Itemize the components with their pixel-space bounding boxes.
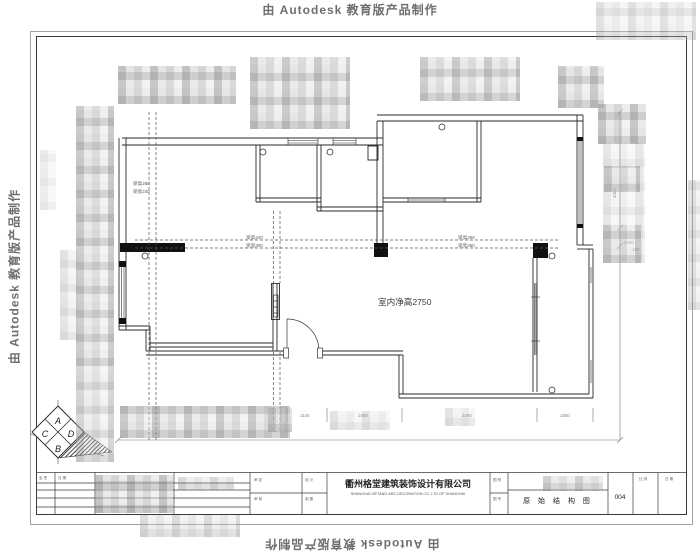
logo-letter-a: A — [54, 416, 61, 426]
svg-text:1140: 1140 — [300, 413, 310, 418]
drawing-title: 原 始 结 构 图 — [523, 496, 593, 505]
svg-text:图 号: 图 号 — [493, 496, 502, 501]
svg-text:梁宽240: 梁宽240 — [133, 188, 150, 195]
svg-text:设 计: 设 计 — [305, 477, 314, 482]
svg-text:比 例: 比 例 — [639, 476, 648, 481]
column-circle-markers — [142, 124, 555, 393]
svg-text:梁宽300: 梁宽300 — [246, 242, 263, 249]
column-fills — [119, 137, 583, 324]
floorplan-canvas: 1140 1500 3280 1500 4300 2300 150 室内净高27… — [0, 0, 700, 560]
door-symbol — [274, 295, 323, 358]
ceiling-height-label: 室内净高2750 — [378, 296, 432, 307]
autodesk-watermark-top: 由 Autodesk 教育版产品制作 — [200, 1, 500, 18]
company-name-cn: 衢州格堂建筑装饰设计有限公司 — [345, 478, 471, 489]
svg-text:会 签: 会 签 — [39, 475, 48, 480]
company-logo: A D B C — [30, 400, 112, 464]
svg-text:梁高240: 梁高240 — [246, 234, 263, 241]
svg-text:制 图: 制 图 — [305, 496, 314, 501]
window-symbols — [122, 138, 592, 383]
logo-letter-c: C — [42, 429, 49, 439]
autodesk-watermark-bottom: 由 Autodesk 教育版产品制作 — [226, 536, 478, 553]
drawing-number: 004 — [615, 494, 626, 501]
beam-dashed-lines — [135, 112, 560, 440]
outer-walls — [119, 115, 593, 398]
svg-text:1500: 1500 — [358, 413, 368, 418]
svg-text:150: 150 — [632, 247, 640, 252]
svg-text:图 别: 图 别 — [493, 477, 502, 482]
logo-letter-b: B — [55, 444, 61, 454]
svg-text:审 核: 审 核 — [254, 496, 263, 501]
svg-text:审 定: 审 定 — [254, 477, 263, 482]
svg-text:4300: 4300 — [612, 188, 617, 198]
svg-text:2300: 2300 — [624, 240, 634, 245]
svg-text:梁宽250: 梁宽250 — [458, 242, 475, 249]
autodesk-watermark-left: 由 Autodesk 教育版产品制作 — [6, 151, 23, 403]
drawing-page: 由 Autodesk 教育版产品制作 由 Autodesk 教育版产品制作 由 … — [0, 0, 700, 560]
svg-text:1500: 1500 — [560, 413, 570, 418]
logo-letter-d: D — [68, 429, 75, 439]
svg-text:日 期: 日 期 — [665, 476, 674, 481]
svg-text:梁高250: 梁高250 — [458, 234, 475, 241]
svg-text:日 期: 日 期 — [58, 475, 67, 480]
dimension-lines — [115, 109, 623, 443]
svg-text:梁高260: 梁高260 — [133, 180, 150, 187]
svg-text:3280: 3280 — [462, 413, 472, 418]
company-name-en: SHANGHAI GETANG ARC DECORATION CO. LTD O… — [351, 492, 466, 496]
